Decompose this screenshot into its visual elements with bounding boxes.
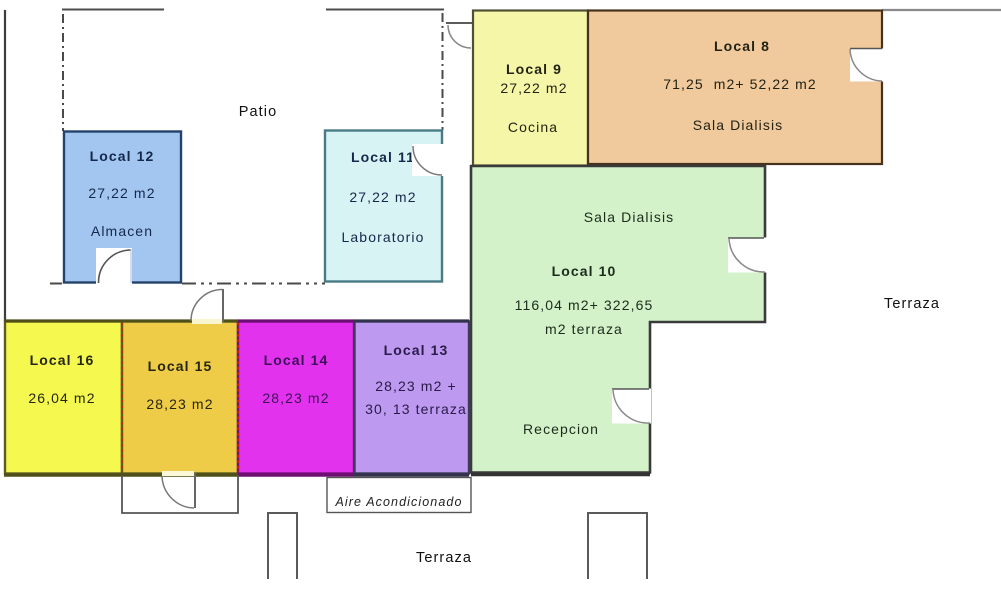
- svg-text:26,04 m2: 26,04 m2: [28, 390, 95, 406]
- svg-text:71,25 m2+ 52,22 m2: 71,25 m2+ 52,22 m2: [663, 76, 817, 92]
- svg-text:Local 16: Local 16: [30, 352, 95, 368]
- svg-text:Patio: Patio: [239, 104, 278, 120]
- svg-text:116,04 m2+ 322,65: 116,04 m2+ 322,65: [515, 297, 654, 313]
- svg-text:27,22 m2: 27,22 m2: [349, 189, 416, 205]
- svg-text:Local 14: Local 14: [264, 352, 329, 368]
- svg-text:Local 8: Local 8: [714, 38, 770, 54]
- svg-text:Cocina: Cocina: [508, 119, 558, 135]
- svg-text:Local 13: Local 13: [384, 342, 449, 358]
- svg-text:28,23 m2 +: 28,23 m2 +: [375, 378, 456, 394]
- svg-text:Laboratorio: Laboratorio: [342, 229, 425, 245]
- svg-text:27,22 m2: 27,22 m2: [500, 80, 567, 96]
- svg-text:Almacen: Almacen: [91, 223, 153, 239]
- svg-text:Terraza: Terraza: [884, 296, 940, 312]
- svg-text:Aire Acondicionado: Aire Acondicionado: [334, 495, 462, 509]
- svg-text:28,23 m2: 28,23 m2: [262, 390, 329, 406]
- svg-text:Sala Dialisis: Sala Dialisis: [693, 117, 784, 133]
- svg-text:Local 11: Local 11: [351, 149, 415, 165]
- svg-text:28,23 m2: 28,23 m2: [146, 396, 213, 412]
- svg-text:Local 12: Local 12: [90, 148, 155, 164]
- svg-text:m2 terraza: m2 terraza: [545, 321, 623, 337]
- svg-text:30, 13 terraza: 30, 13 terraza: [365, 401, 467, 417]
- svg-text:Local 15: Local 15: [148, 358, 213, 374]
- svg-text:Recepcion: Recepcion: [523, 421, 599, 437]
- svg-text:Sala Dialisis: Sala Dialisis: [584, 209, 675, 225]
- svg-text:Terraza: Terraza: [416, 550, 472, 566]
- svg-text:Local 9: Local 9: [506, 61, 562, 77]
- svg-text:Local 10: Local 10: [552, 263, 617, 279]
- svg-text:27,22 m2: 27,22 m2: [88, 185, 155, 201]
